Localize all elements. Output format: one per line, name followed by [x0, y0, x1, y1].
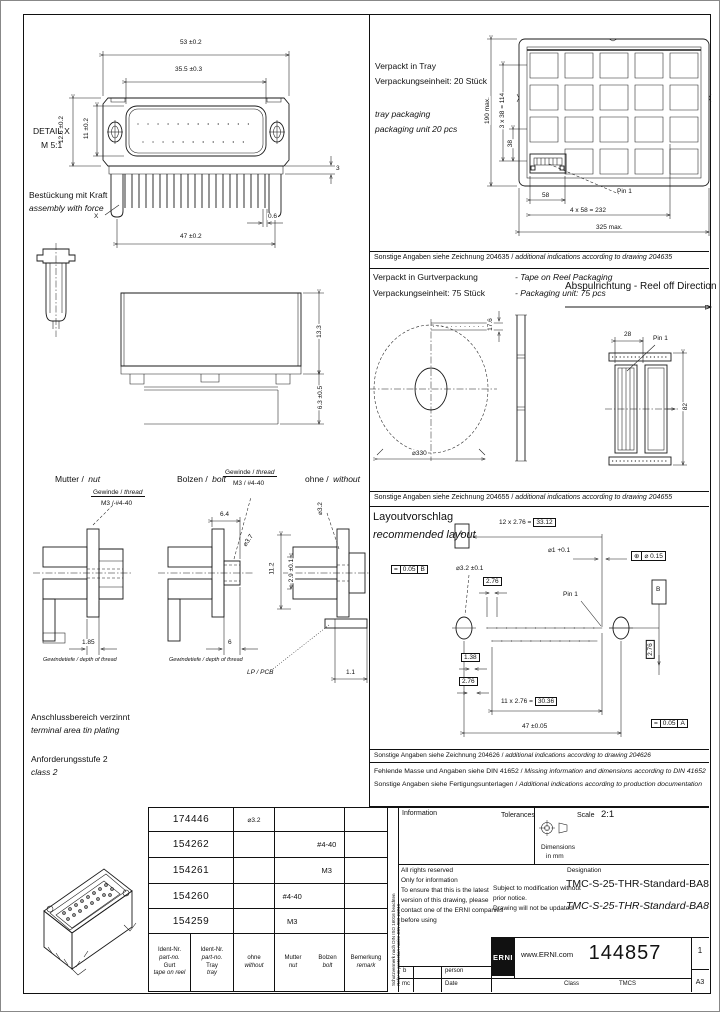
table-row-pn: 174446 — [149, 808, 233, 832]
detail-label: DETAIL X — [33, 127, 70, 136]
cell-mutter: #4-40 — [275, 892, 310, 901]
title-block-hline-3 — [398, 966, 491, 967]
footer-cell: mc — [402, 981, 410, 988]
layout-pitch-dim: 2.76 — [483, 577, 502, 586]
reel-note-strip: Sonstige Angaben siehe Zeichnung 204655 … — [370, 491, 709, 507]
table-row-pn: 154259 — [149, 909, 233, 934]
header-bolzen: Bolzen bolt — [311, 934, 344, 991]
layout-hole-span-dim: 47 ±0.05 — [521, 723, 548, 730]
din-note: Fehlende Masse und Angaben siehe DIN 416… — [374, 768, 709, 775]
tray-pin1-label: Pin 1 — [617, 188, 632, 195]
scale-value: 2:1 — [601, 810, 614, 820]
table-row-pn: 154260 — [149, 884, 233, 909]
plating-note-de: Anschlussbereich verzinnt — [31, 713, 130, 722]
dim-shroud-width: 35.5 ±0.3 — [174, 66, 203, 73]
header-line: part-no. — [202, 955, 223, 963]
drawing-sheet: 53 ±0.2 35.5 ±0.3 12.6 ±0.2 11 ±0.2 3 0.… — [0, 0, 720, 1012]
parallel-symbol-b: = — [392, 566, 400, 573]
reel-strip-en: additional indications according to draw… — [515, 494, 672, 501]
iso-view-section — [26, 851, 151, 991]
dims-note-2: in mm — [546, 853, 564, 860]
without-board-dim: 1.1 — [345, 669, 356, 676]
header-mutter: Mutter nut — [274, 934, 311, 991]
detail-x-marker: X — [93, 213, 99, 220]
parallel-datum-b: B — [417, 566, 426, 573]
table-row-remark — [344, 858, 387, 884]
erni-logo-text: ERNI — [493, 953, 513, 962]
footer-cell: b — [403, 968, 406, 975]
table-row-variant: M3 — [274, 909, 344, 934]
doc-number: 144857 — [561, 942, 689, 964]
table-row-pn: 154261 — [149, 858, 233, 884]
layout-top-dim-sum: 33.12 — [533, 518, 555, 527]
nut-thread-de: Gewinde / — [93, 489, 122, 496]
layout-top-dim: 12 x 2.76 = 33.12 — [499, 518, 556, 527]
dim-pin-width: 0.6 — [267, 213, 278, 220]
header-line: remark — [357, 963, 376, 971]
header-line: bolt — [323, 963, 333, 971]
nut-depth-dim: 1.85 — [81, 639, 96, 646]
parallel-symbol-a: = — [652, 720, 660, 727]
cell-bolzen: M3 — [310, 866, 345, 875]
rights-line: before using — [401, 917, 437, 924]
parallel-datum-a: A — [677, 720, 686, 727]
variants-section: Mutter / nut Bolzen / bolt ohne / withou… — [29, 469, 369, 714]
footer-divider-1 — [413, 966, 414, 992]
nut-thread-callout: Gewinde / thread — [91, 489, 145, 497]
reel-drawing — [369, 269, 714, 491]
header-line: Gurt — [164, 963, 176, 971]
parts-table: 174446 ⌀3.2 154262 #4-40 154261 M3 15426… — [148, 807, 388, 992]
table-row-variant: M3 — [274, 858, 344, 884]
tray-note-de-1: Verpackt in Tray — [375, 62, 436, 71]
bolt-depth-dim: 6 — [227, 639, 233, 646]
reel-note-de-2: Verpackungseinheit: 75 Stück — [373, 289, 485, 298]
cell-mutter: M3 — [275, 917, 310, 926]
footer-cell: Class — [564, 981, 579, 988]
sheet-format: A3 — [691, 979, 709, 987]
layout-top-dim-prefix: 12 x 2.76 = — [499, 519, 531, 526]
without-dia-dim: ⌀3.2 — [317, 501, 324, 516]
without-label-de: ohne / — [305, 474, 329, 484]
reel-strip-de: Sonstige Angaben siehe Zeichnung 204655 … — [374, 494, 513, 501]
header-line: Tray — [206, 963, 218, 971]
rights-line: All rights reserved — [401, 867, 453, 874]
tolerances-label: Tolerances — [501, 812, 535, 820]
erni-logo: ERNI — [492, 938, 514, 976]
dim-hole-pitch: 47 ±0.2 — [179, 233, 203, 240]
header-line: part-no. — [159, 955, 180, 963]
scale-label: Scale — [577, 812, 595, 820]
layout-pitch-dim-2: 2.76 — [459, 677, 478, 686]
bolt-thread-size: M3 / #4-40 — [233, 480, 264, 487]
header-line: Bolzen — [318, 955, 336, 963]
title-block-left-border — [398, 807, 399, 992]
layout-mount-dia: ⌀3.2 ±0.1 — [455, 565, 484, 572]
layout-section: Layoutvorschlag recommended layout A 12 … — [369, 507, 714, 749]
tray-pitch-dim: 58 — [541, 192, 550, 199]
tray-strip-en: additional indications according to draw… — [515, 254, 672, 261]
parallel-tolerance-a: 0.05 — [660, 720, 678, 727]
dim-pin-projection: 6.3 ±0.5 — [317, 385, 324, 410]
side-view-section: 13.3 6.3 ±0.5 — [106, 256, 361, 491]
plating-note-en: terminal area tin plating — [31, 726, 119, 735]
header-gurt: Ident-Nr. part-no. Gurt tape on reel — [149, 934, 190, 991]
dim-pin-length: 3 — [335, 165, 341, 172]
tray-note-en-2: packaging unit 20 pcs — [375, 125, 457, 134]
projection-symbol-icon — [539, 819, 569, 837]
without-offset-dim: 2.9 ±0.1 — [288, 558, 295, 583]
table-row-variant: #4-40 — [274, 884, 344, 909]
position-symbol: ⊕ — [632, 552, 641, 560]
bolt-thread-de: Gewinde / — [225, 469, 254, 476]
designation-alt: TMC-S-25-THR-Standard-BA8 — [566, 901, 709, 913]
side-view-drawing — [106, 256, 361, 491]
table-row-ohne — [233, 884, 274, 909]
standards-notes-box: Fehlende Masse und Angaben siehe DIN 416… — [370, 763, 709, 807]
rights-line: To ensure that this is the latest — [401, 887, 489, 894]
header-line: nut — [289, 963, 297, 971]
nut-label-de: Mutter / — [55, 474, 84, 484]
footer-divider-2 — [441, 966, 442, 992]
layout-bottom-dim-prefix: 11 x 2.76 = — [501, 698, 533, 705]
tray-section: Verpackt in Tray Verpackungseinheit: 20 … — [369, 14, 714, 251]
header-tray: Ident-Nr. part-no. Tray tray — [190, 934, 233, 991]
table-row-ohne — [233, 858, 274, 884]
table-row-ohne — [233, 909, 274, 934]
table-row-variant: #4-40 — [274, 832, 344, 858]
datum-b-label: B — [656, 586, 660, 593]
nut-thread-en: thread — [124, 489, 142, 496]
layout-row-offset-dim: 2.76 — [646, 640, 655, 659]
front-view-section: 53 ±0.2 35.5 ±0.3 12.6 ±0.2 11 ±0.2 3 0.… — [29, 15, 369, 265]
variant-without-label: ohne / without — [305, 469, 360, 487]
left-notes: Anschlussbereich verzinnt terminal area … — [31, 713, 331, 793]
table-row-pn: 154262 — [149, 832, 233, 858]
designation: TMC-S-25-THR-Standard-BA8 — [566, 879, 709, 891]
layout-bottom-dim-sum: 30.36 — [535, 697, 557, 706]
rights-line: version of this drawing, please — [401, 897, 488, 904]
tray-width-dim: 325 max. — [595, 224, 624, 231]
title-block-hline-1 — [398, 864, 709, 865]
production-note-de: Sonstige Angaben siehe Fertigungsunterla… — [374, 781, 517, 788]
layout-title-de: Layoutvorschlag — [373, 511, 453, 523]
rights-line: contact one of the ERNI companies — [401, 907, 503, 914]
dim-flange-width: 53 ±0.2 — [179, 39, 203, 46]
layout-strip-en: additional indications according to draw… — [505, 752, 651, 759]
front-view-drawing — [29, 15, 369, 265]
parallel-tolerance-frame-b: = 0.05 B — [391, 565, 428, 574]
rights-line: Only for information — [401, 877, 458, 884]
assembly-note-en: assembly with force — [29, 204, 104, 213]
modification-line: prior notice. — [493, 895, 527, 902]
modification-line: Drawing will not be updated. — [493, 905, 575, 912]
bolt-label-de: Bolzen / — [177, 474, 208, 484]
sheet-number: 1 — [691, 947, 709, 956]
dim-shroud-height: 11 ±0.2 — [83, 117, 90, 140]
table-row-remark — [344, 808, 387, 832]
tray-note-strip: Sonstige Angaben siehe Zeichnung 204635 … — [370, 251, 709, 269]
table-row-remark — [344, 909, 387, 934]
position-tolerance-frame: ⊕ ⌀ 0.15 — [631, 551, 666, 561]
tray-note-de-2: Verpackungseinheit: 20 Stück — [375, 77, 487, 86]
header-ohne: ohne without — [233, 934, 274, 991]
layout-hole-dia: ⌀1 +0.1 — [547, 547, 571, 554]
dims-note-1: Dimensions — [541, 844, 575, 851]
table-row-ohne — [233, 832, 274, 858]
bolt-length-dim: 6.4 — [219, 511, 230, 518]
info-label: Information — [402, 810, 437, 818]
designation-label: Designation — [567, 867, 601, 874]
header-line: tray — [207, 970, 217, 978]
variant-bolt-label: Bolzen / bolt — [177, 469, 226, 487]
reel-direction-label: Abspulrichtung - Reel off Direction — [565, 281, 717, 292]
class-note-de: Anforderungsstufe 2 — [31, 755, 108, 764]
assembly-note-de: Bestückung mit Kraft — [29, 191, 107, 200]
nut-label-en: nut — [88, 474, 100, 484]
datum-a-label: A — [459, 530, 463, 537]
detail-x-view — [29, 241, 89, 341]
layout-drawing — [369, 507, 714, 749]
din-note-de: Fehlende Masse und Angaben siehe DIN 416… — [374, 768, 523, 775]
footer-cell: TMCS — [619, 981, 636, 988]
footer-cell: Date — [445, 981, 458, 988]
reel-section: Verpackt in Gurtverpackung - Tape on Ree… — [369, 269, 714, 491]
reel-tape-width-dim: 82 — [682, 402, 689, 411]
without-height-dim: 11.2 — [269, 561, 276, 575]
header-line: Ident-Nr. — [200, 947, 223, 955]
tray-height-dim: 190 max. — [484, 96, 491, 125]
production-note: Sonstige Angaben siehe Fertigungsunterla… — [374, 781, 709, 788]
reel-tape-dim: 17.6 — [487, 317, 494, 332]
logo-right-border — [514, 937, 515, 978]
header-line: without — [244, 963, 263, 971]
layout-pin1-label: Pin 1 — [563, 591, 578, 598]
tray-note-en-1: tray packaging — [375, 110, 430, 119]
header-line: Bemerkung — [351, 955, 382, 963]
table-row-remark — [344, 832, 387, 858]
reel-pocket-dim: 28 — [623, 331, 632, 338]
nut-depth-label: Gewindetiefe / depth of thread — [43, 657, 117, 663]
cell-bolzen: #4-40 — [310, 840, 345, 849]
din-note-en: Missing information and dimensions accor… — [524, 768, 705, 775]
position-tolerance-value: ⌀ 0.15 — [641, 552, 664, 560]
table-row-ohne: ⌀3.2 — [233, 808, 274, 832]
bolt-thread-callout: Gewinde / thread — [223, 469, 277, 477]
layout-note-strip: Sonstige Angaben siehe Zeichnung 204626 … — [370, 749, 709, 763]
tray-rows-dim: 3 x 38 = 114 — [499, 92, 506, 129]
footer-cell: person — [445, 968, 463, 975]
header-line: ohne — [247, 955, 260, 963]
header-line: tape on reel — [154, 970, 186, 978]
nut-thread-size: M3 / #4-40 — [101, 500, 132, 507]
table-row-remark — [344, 884, 387, 909]
format-divider — [691, 969, 709, 970]
pcb-label: LP / PCB — [247, 669, 274, 676]
layout-strip-de: Sonstige Angaben siehe Zeichnung 204626 … — [374, 752, 503, 759]
header-bemerkung: Bemerkung remark — [344, 934, 387, 991]
class-note-en: class 2 — [31, 768, 57, 777]
bolt-depth-label: Gewindetiefe / depth of thread — [169, 657, 243, 663]
detail-x-drawing — [29, 241, 89, 341]
without-label-en: without — [333, 474, 360, 484]
tray-strip-de: Sonstige Angaben siehe Zeichnung 204635 … — [374, 254, 513, 261]
bolt-thread-en: thread — [256, 469, 274, 476]
table-row-variant — [274, 808, 344, 832]
parallel-tolerance-frame-a: = 0.05 A — [651, 719, 688, 728]
iso-view-drawing — [26, 851, 151, 991]
header-line: Ident-Nr. — [158, 947, 181, 955]
production-note-en: Additional indications according to prod… — [519, 781, 702, 788]
reel-note-de-1: Verpackt in Gurtverpackung — [373, 273, 478, 282]
dim-body-height: 13.3 — [316, 324, 323, 339]
title-block-hline-2 — [491, 937, 709, 938]
header-line: Mutter — [284, 955, 301, 963]
detail-scale: M 5:1 — [41, 141, 62, 150]
layout-half-pitch-dim: 1.38 — [461, 653, 480, 662]
tray-span-dim: 4 x 58 = 232 — [569, 207, 607, 214]
parallel-tolerance-b: 0.05 — [400, 566, 418, 573]
variant-nut-label: Mutter / nut — [55, 469, 100, 487]
layout-bottom-dim: 11 x 2.76 = 30.36 — [501, 697, 557, 706]
reel-dia-dim: ⌀330 — [411, 450, 428, 457]
tray-row-pitch-dim: 38 — [507, 139, 514, 148]
reel-pin1-label: Pin 1 — [653, 335, 668, 342]
